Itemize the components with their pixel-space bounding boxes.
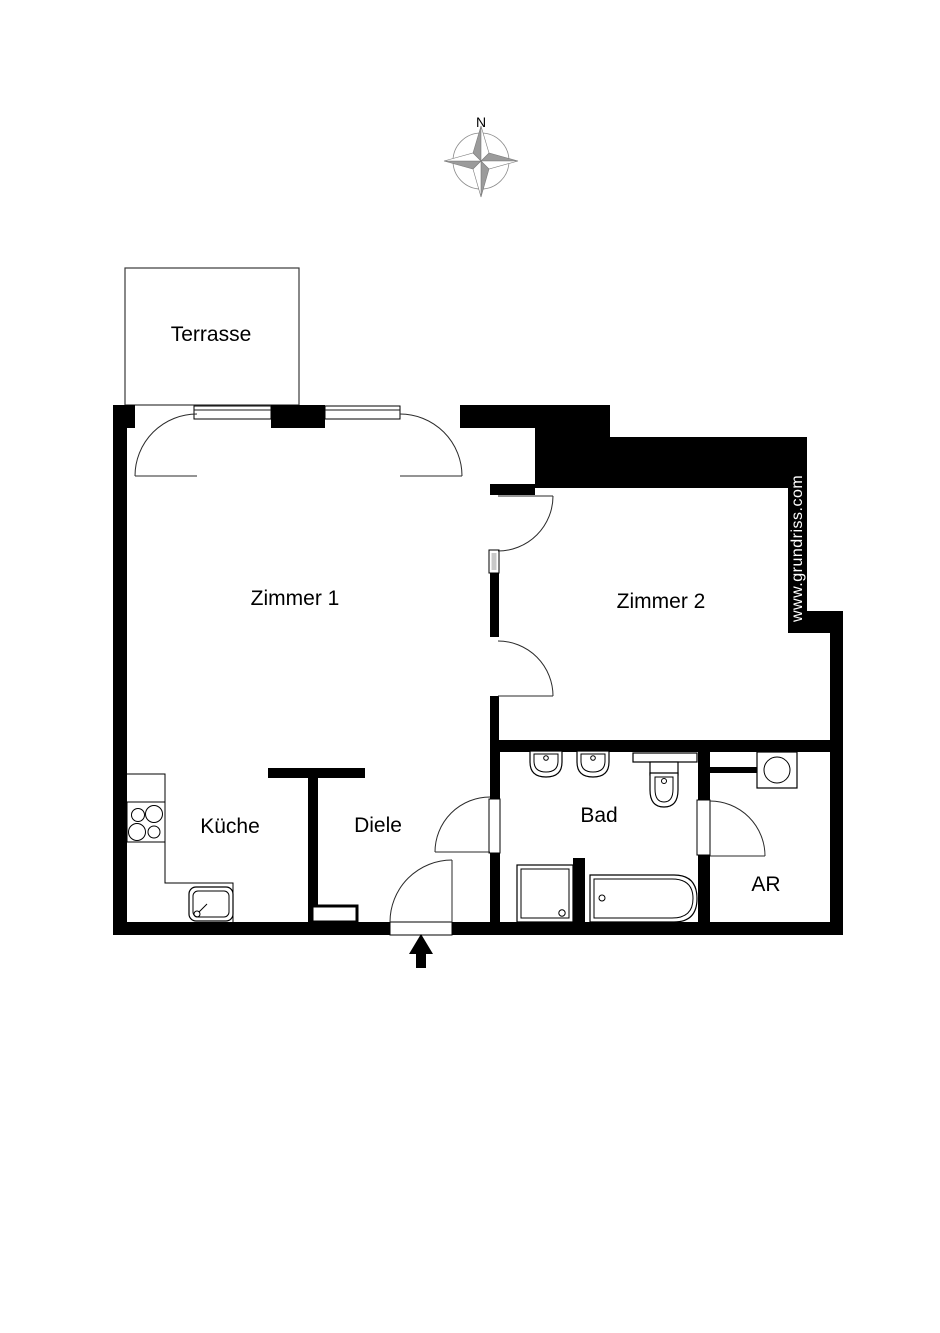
zimmer2-door-upper bbox=[498, 496, 553, 551]
wall-niche-stroke bbox=[710, 767, 757, 773]
ar-door bbox=[710, 801, 765, 856]
door-swing-arc bbox=[400, 414, 462, 476]
room-label-bad: Bad bbox=[580, 804, 617, 827]
wall-top-pillar bbox=[271, 405, 325, 428]
shower-outer bbox=[517, 865, 573, 922]
wall-stub-zimmer2-top bbox=[490, 484, 535, 495]
room-label-ar: AR bbox=[751, 873, 780, 896]
room-label-zimmer1: Zimmer 1 bbox=[251, 587, 340, 610]
glass-panel bbox=[489, 550, 499, 573]
washing-machine-icon bbox=[757, 752, 797, 788]
wall-top-band-zimmer2 bbox=[610, 437, 807, 488]
window-icon bbox=[194, 406, 271, 419]
tub-outer bbox=[590, 875, 697, 922]
wall-diele-bad-lower bbox=[490, 853, 500, 922]
entrance-arrow-icon bbox=[409, 934, 433, 968]
wall-zimmer1-zimmer2-low bbox=[490, 696, 499, 742]
burner bbox=[146, 806, 163, 823]
door-swings bbox=[135, 414, 765, 922]
wall-zimmer1-zimmer2-mid bbox=[490, 573, 499, 637]
watermark-text: www.grundriss.com bbox=[789, 475, 806, 623]
floorplan-page: N bbox=[0, 0, 940, 1333]
window-frame bbox=[194, 406, 271, 419]
wall-left bbox=[113, 405, 127, 935]
wall-bottom bbox=[113, 922, 843, 935]
wall-step-block bbox=[535, 427, 610, 488]
basin-outer bbox=[530, 751, 562, 777]
room-label-terrasse: Terrasse bbox=[171, 323, 252, 346]
washbasin-icon bbox=[530, 751, 562, 777]
toilet-icon bbox=[633, 753, 697, 807]
wall-right-lower bbox=[830, 633, 843, 935]
shower-icon bbox=[517, 865, 573, 922]
door-swing-arc bbox=[498, 641, 553, 696]
bad-door bbox=[435, 797, 490, 852]
entrance-door-opening bbox=[390, 922, 452, 935]
wall-diele-bad-upper bbox=[490, 748, 500, 799]
wall-bad-ar-upper bbox=[698, 752, 710, 800]
door-swing-arc bbox=[498, 496, 553, 551]
window-icon bbox=[325, 406, 400, 419]
bathtub-icon bbox=[590, 875, 697, 922]
door-swing-arc bbox=[135, 414, 197, 476]
wall-bad-top-band bbox=[490, 740, 830, 752]
panel-glass bbox=[492, 553, 497, 570]
room-label-kueche: Küche bbox=[200, 815, 260, 838]
floorplan-canvas: N bbox=[0, 0, 940, 1333]
door-swing-arc bbox=[390, 860, 452, 922]
burner bbox=[132, 809, 145, 822]
wall-bad-ar-lower bbox=[698, 855, 710, 922]
wall-top-left-corner bbox=[113, 405, 135, 428]
terrace-door-right bbox=[400, 414, 462, 476]
compass-icon: N bbox=[444, 114, 518, 197]
burner bbox=[148, 826, 160, 838]
basin-outer bbox=[577, 751, 609, 777]
wall-top-right-segment bbox=[460, 405, 610, 428]
room-label-diele: Diele bbox=[354, 814, 402, 837]
kitchen-sink-icon bbox=[189, 887, 233, 921]
compass-north-label: N bbox=[476, 114, 486, 130]
ar-door-opening bbox=[697, 800, 710, 855]
wall-kueche-diele-stem bbox=[308, 778, 318, 922]
zimmer2-door-lower bbox=[498, 641, 553, 696]
terrace-door-left bbox=[135, 414, 197, 476]
room-label-zimmer2: Zimmer 2 bbox=[617, 590, 706, 613]
burner bbox=[129, 824, 146, 841]
wall-kueche-diele-bar bbox=[268, 768, 365, 778]
door-swing-arc bbox=[710, 801, 765, 856]
washbasin-icon bbox=[577, 751, 609, 777]
bad-door-opening bbox=[489, 799, 500, 853]
wall-shower-divider bbox=[573, 858, 585, 922]
door-swing-arc bbox=[435, 797, 490, 852]
toilet-shelf bbox=[633, 753, 697, 762]
entrance-door bbox=[390, 860, 452, 922]
cooktop-icon bbox=[127, 802, 165, 842]
wall-foot-box bbox=[312, 906, 357, 922]
window-frame bbox=[325, 406, 400, 419]
